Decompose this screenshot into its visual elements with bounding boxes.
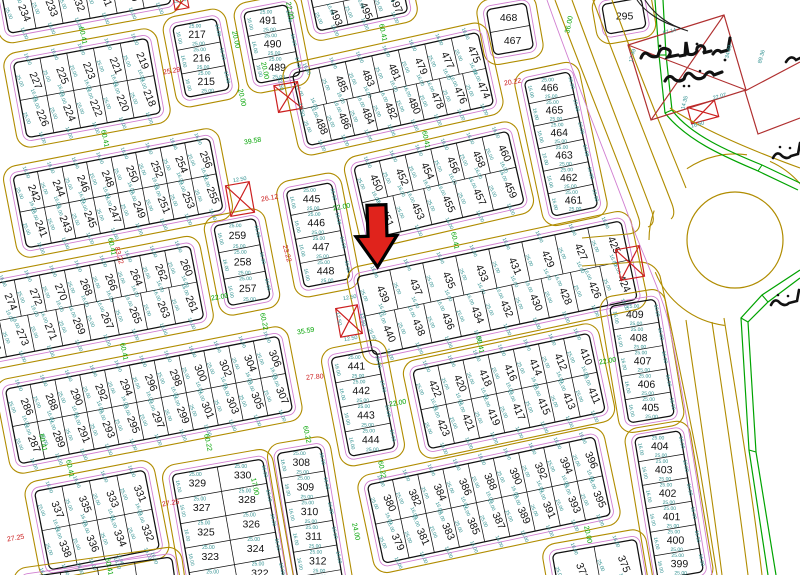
svg-text:25.00: 25.00 — [638, 374, 651, 380]
svg-text:216: 216 — [193, 52, 211, 64]
svg-text:25.00: 25.00 — [541, 77, 554, 83]
svg-text:445: 445 — [303, 193, 321, 205]
svg-text:217: 217 — [188, 29, 206, 41]
svg-text:447: 447 — [312, 241, 330, 253]
svg-text:491: 491 — [259, 15, 277, 27]
svg-text:401: 401 — [663, 511, 681, 523]
svg-text:25.00: 25.00 — [306, 525, 319, 531]
svg-text:25.00: 25.00 — [239, 276, 252, 282]
svg-text:25.00: 25.00 — [313, 236, 326, 242]
svg-text:402: 402 — [659, 488, 677, 500]
svg-text:25.00: 25.00 — [656, 459, 669, 465]
svg-text:465: 465 — [545, 104, 563, 117]
svg-text:25.00: 25.00 — [671, 553, 684, 559]
svg-text:25.00: 25.00 — [264, 33, 277, 39]
svg-text:25.00: 25.00 — [652, 435, 665, 441]
svg-text:25.00: 25.00 — [348, 355, 361, 361]
svg-text:407: 407 — [634, 355, 652, 367]
svg-text:25.00: 25.00 — [635, 350, 648, 356]
svg-text:25.00: 25.00 — [198, 521, 211, 527]
svg-text:25.00: 25.00 — [301, 500, 314, 506]
svg-text:463: 463 — [555, 149, 573, 162]
svg-text:408: 408 — [630, 332, 648, 344]
svg-text:443: 443 — [357, 410, 375, 422]
svg-text:25.00: 25.00 — [194, 496, 207, 502]
svg-text:311: 311 — [305, 531, 322, 543]
svg-text:399: 399 — [671, 558, 689, 570]
svg-text:25.00: 25.00 — [293, 451, 306, 457]
svg-text:461: 461 — [565, 194, 583, 207]
svg-text:258: 258 — [234, 256, 252, 268]
svg-text:404: 404 — [651, 441, 669, 453]
svg-text:25.00: 25.00 — [243, 297, 256, 303]
svg-text:25.00: 25.00 — [667, 529, 680, 535]
svg-text:323: 323 — [201, 551, 219, 563]
svg-text:25.00: 25.00 — [642, 397, 655, 403]
svg-text:25.00: 25.00 — [317, 260, 330, 266]
svg-text:467: 467 — [504, 35, 522, 47]
svg-text:25.00: 25.00 — [551, 122, 564, 128]
svg-text:25.00: 25.00 — [243, 513, 256, 519]
svg-text:25.00: 25.00 — [252, 562, 265, 568]
svg-text:25.00: 25.00 — [201, 88, 214, 94]
svg-text:25.00: 25.00 — [560, 167, 573, 173]
svg-text:25.00: 25.00 — [189, 23, 202, 29]
svg-text:25.00: 25.00 — [206, 570, 219, 575]
svg-text:329: 329 — [189, 478, 207, 490]
svg-text:441: 441 — [348, 360, 366, 372]
svg-text:326: 326 — [242, 518, 260, 530]
svg-text:25.00: 25.00 — [269, 57, 282, 63]
svg-text:327: 327 — [193, 502, 211, 514]
svg-text:25.00: 25.00 — [565, 190, 578, 196]
svg-text:25.00: 25.00 — [198, 71, 211, 77]
svg-text:25.00: 25.00 — [234, 464, 247, 470]
svg-text:25.00: 25.00 — [546, 100, 559, 106]
svg-text:25.00: 25.00 — [358, 404, 371, 410]
svg-text:400: 400 — [667, 535, 685, 547]
svg-text:25.00: 25.00 — [202, 545, 215, 551]
svg-text:444: 444 — [362, 434, 380, 446]
svg-text:442: 442 — [352, 385, 370, 397]
svg-text:490: 490 — [264, 38, 282, 50]
svg-text:257: 257 — [239, 283, 257, 295]
svg-text:406: 406 — [638, 379, 656, 391]
svg-text:25.00: 25.00 — [310, 550, 323, 556]
svg-text:25.00: 25.00 — [660, 482, 673, 488]
svg-text:448: 448 — [317, 265, 335, 277]
svg-text:309: 309 — [297, 481, 315, 493]
svg-text:25.00: 25.00 — [239, 488, 252, 494]
svg-text:409: 409 — [626, 309, 644, 321]
svg-text:25.00: 25.00 — [234, 250, 247, 256]
svg-text:25.00: 25.00 — [229, 223, 242, 229]
svg-text:405: 405 — [642, 402, 660, 414]
svg-text:25.00: 25.00 — [556, 145, 569, 151]
svg-text:25.00: 25.00 — [297, 476, 310, 482]
svg-text:25.00: 25.00 — [362, 428, 375, 434]
svg-text:25.00: 25.00 — [627, 304, 640, 310]
svg-text:325: 325 — [197, 526, 215, 538]
svg-text:25.00: 25.00 — [674, 570, 687, 575]
svg-text:25.00: 25.00 — [247, 537, 260, 543]
svg-text:464: 464 — [550, 127, 568, 140]
svg-text:468: 468 — [500, 12, 518, 24]
svg-text:25.00: 25.00 — [308, 212, 321, 218]
svg-text:324: 324 — [247, 543, 265, 555]
svg-text:25.00: 25.00 — [353, 379, 366, 385]
svg-text:403: 403 — [655, 464, 673, 476]
svg-text:25.00: 25.00 — [664, 506, 677, 512]
svg-text:312: 312 — [309, 555, 327, 567]
svg-text:215: 215 — [197, 76, 215, 88]
svg-text:25.00: 25.00 — [189, 472, 202, 478]
svg-text:308: 308 — [292, 457, 310, 469]
svg-text:462: 462 — [560, 172, 578, 185]
svg-text:25.00: 25.00 — [631, 327, 644, 333]
svg-text:466: 466 — [541, 82, 559, 95]
svg-text:25.00: 25.00 — [193, 47, 206, 53]
svg-text:259: 259 — [229, 230, 247, 242]
svg-text:25.00: 25.00 — [321, 278, 334, 284]
svg-text:322: 322 — [251, 567, 269, 575]
svg-text:25.00: 25.00 — [303, 188, 316, 194]
svg-text:310: 310 — [301, 506, 319, 518]
svg-text:25.00: 25.00 — [645, 414, 658, 420]
svg-text:330: 330 — [234, 470, 252, 482]
svg-text:25.00: 25.00 — [366, 447, 379, 453]
svg-text:25.00: 25.00 — [260, 9, 273, 15]
svg-text:446: 446 — [307, 217, 325, 229]
svg-text:25.00: 25.00 — [569, 206, 582, 212]
